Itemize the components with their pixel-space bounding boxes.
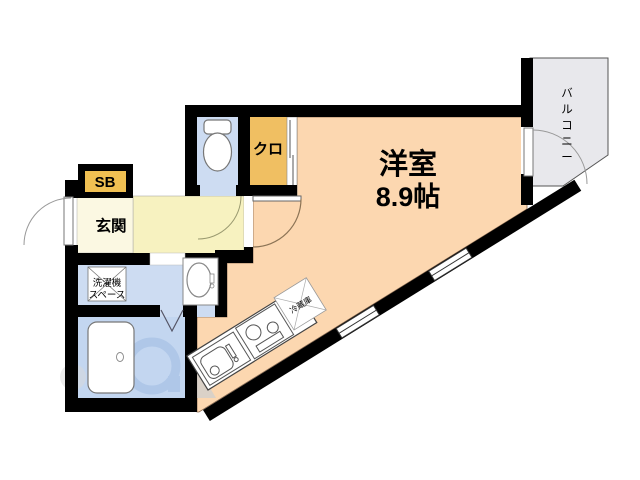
toilet-icon [204, 120, 232, 171]
washer-label-line1: 洗濯機 [93, 277, 122, 289]
entrance-door [24, 197, 73, 245]
balcony-label: バルコニー [561, 87, 573, 164]
main-room-name: 洋室 [379, 147, 437, 181]
floor-plan: 冷蔵庫 洋室 8.9帖 バルコニー クロ SB 玄関 洗濯機 スペース [0, 0, 640, 480]
sink-icon [183, 258, 218, 305]
main-room-size: 8.9帖 [376, 182, 441, 212]
bathtub-icon [88, 322, 134, 393]
closet-sliding-door [287, 117, 297, 196]
washer-label-line2: スペース [89, 290, 126, 301]
floor-plan-canvas: 冷蔵庫 洋室 8.9帖 バルコニー クロ SB 玄関 洗濯機 スペース [0, 0, 640, 480]
closet-label: クロ [253, 141, 283, 158]
hallway-floor [133, 196, 244, 257]
shoebox-label: SB [95, 174, 116, 191]
entrance-label: 玄関 [95, 216, 126, 235]
washroom-door-opening [150, 253, 185, 265]
